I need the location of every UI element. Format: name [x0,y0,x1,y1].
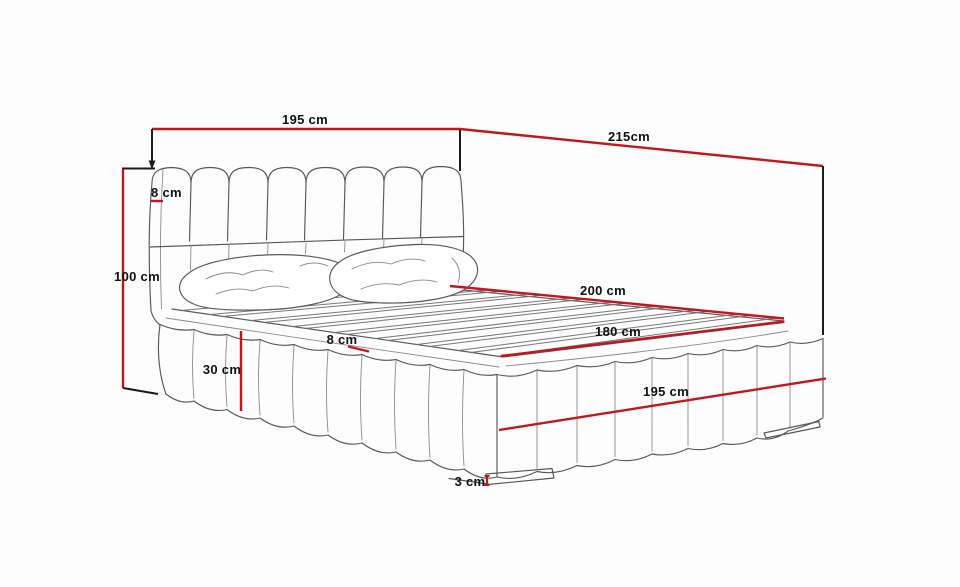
dim-headboard-thickness: 8 cm [151,185,182,201]
pillows [179,244,477,310]
dim-mattress-width-label: 180 cm [595,324,641,339]
dim-headboard-height-bottom-tick [123,388,158,394]
headboard-channel-dividers [190,182,423,241]
dim-base-height: 30 cm [203,331,241,411]
plinth [449,422,820,485]
bed-drawing [149,167,823,485]
dim-plinth-height: 3 cm [455,474,490,489]
dim-mattress-thickness: 8 cm [327,332,369,352]
base-near-bottom-edge [166,394,497,478]
base-foot-top-edge [497,339,823,377]
dim-frame-length-label: 215cm [608,129,650,144]
base-foot-dividers [537,343,790,469]
dim-mattress-thickness-label: 8 cm [327,332,358,347]
dim-headboard-height: 100 cm [114,169,160,395]
dim-base-height-label: 30 cm [203,362,241,377]
dim-headboard-width: 195 cm [149,112,460,171]
dim-headboard-height-label: 100 cm [114,269,160,284]
dim-plinth-height-label: 3 cm [455,474,486,489]
base-near-dividers [193,331,465,467]
dim-headboard-thickness-label: 8 cm [151,185,182,200]
bed-diagram-canvas: 195 cm 215cm 100 cm 8 cm 200 cm 180 cm 8… [0,0,960,587]
dim-mattress-length-label: 200 cm [580,283,626,298]
pillow-left [179,255,351,310]
headboard-left-edge [149,183,160,325]
base-left-edge [158,325,166,395]
pillow-right [330,244,478,303]
dim-frame-width: 195 cm [499,379,826,431]
dim-frame-width-label: 195 cm [643,384,689,399]
bed-base [158,325,823,479]
bed-dimension-diagram: 195 cm 215cm 100 cm 8 cm 200 cm 180 cm 8… [0,0,960,587]
headboard-top-scallops [152,167,461,184]
dim-headboard-width-label: 195 cm [282,112,328,127]
dim-headboard-width-ticks [152,129,460,171]
dim-mattress-thickness-line [348,347,369,352]
